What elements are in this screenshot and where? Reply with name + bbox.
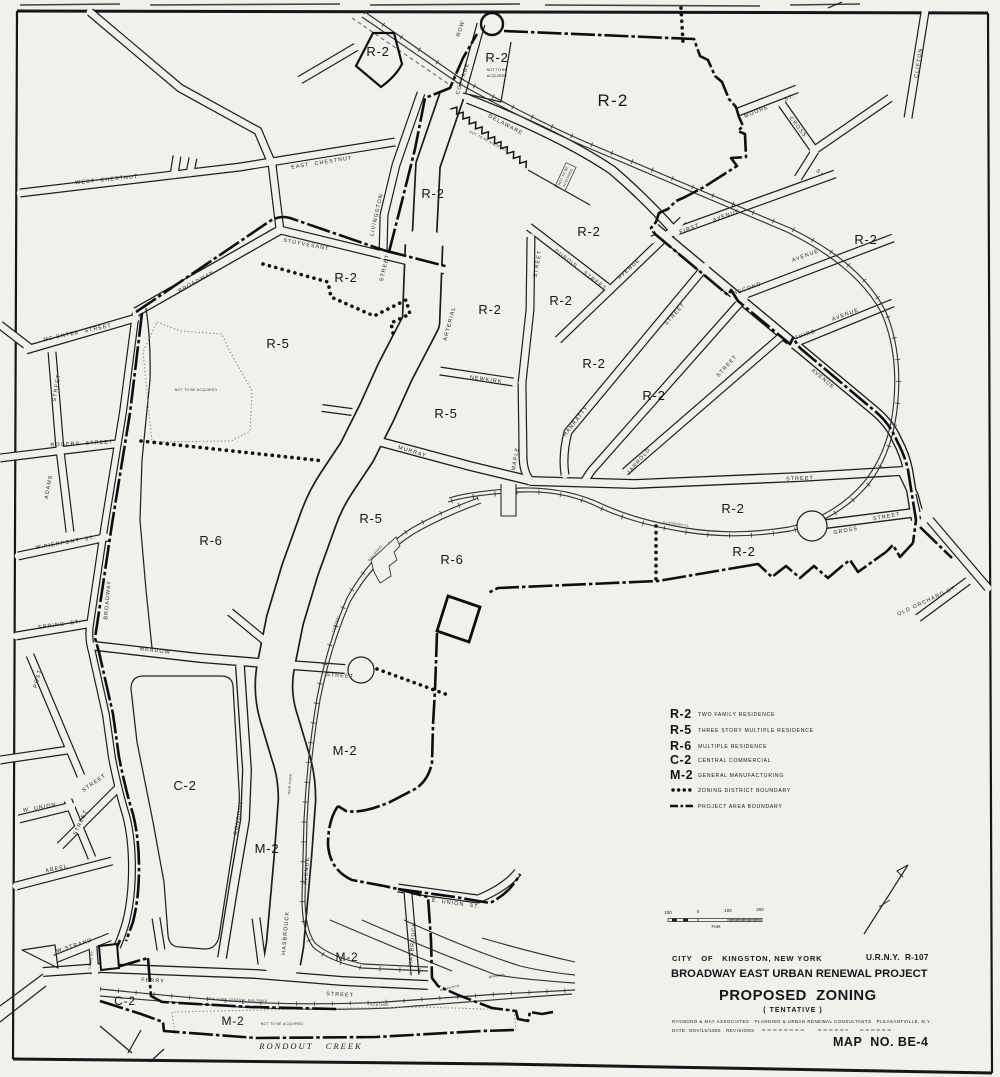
svg-text:C-2: C-2 bbox=[670, 753, 692, 767]
svg-text:R-5: R-5 bbox=[266, 336, 289, 351]
svg-text:M-2: M-2 bbox=[333, 743, 358, 758]
svg-text:NOT TO BE: NOT TO BE bbox=[487, 68, 508, 72]
svg-text:PROJECT AREA BOUNDARY: PROJECT AREA BOUNDARY bbox=[698, 804, 783, 810]
svg-text:ECHTMILL: ECHTMILL bbox=[370, 1003, 389, 1007]
svg-text:R-2: R-2 bbox=[366, 44, 389, 59]
svg-text:M-2: M-2 bbox=[335, 950, 358, 964]
svg-text:R-2: R-2 bbox=[732, 544, 755, 559]
svg-text:RONDOUT CREEK: RONDOUT CREEK bbox=[258, 1041, 362, 1051]
svg-text:M-2: M-2 bbox=[670, 768, 693, 782]
svg-text:ZONING DISTRICT BOUNDARY: ZONING DISTRICT BOUNDARY bbox=[698, 788, 791, 794]
svg-text:R-2: R-2 bbox=[577, 224, 600, 239]
svg-text:R-2: R-2 bbox=[421, 186, 444, 201]
svg-text:R-5: R-5 bbox=[359, 511, 382, 526]
svg-text:PROPOSED ZONING: PROPOSED ZONING bbox=[719, 988, 877, 1004]
svg-text:MULTIPLE RESIDENCE: MULTIPLE RESIDENCE bbox=[698, 744, 767, 750]
svg-text:CENTRAL COMMERCIAL: CENTRAL COMMERCIAL bbox=[698, 758, 771, 764]
svg-text:NOT TO BE ACQUIRED: NOT TO BE ACQUIRED bbox=[175, 388, 218, 392]
svg-text:R-2: R-2 bbox=[598, 91, 629, 110]
svg-text:M-2: M-2 bbox=[255, 841, 280, 856]
svg-text:NOT TO BE ACQUIRED: NOT TO BE ACQUIRED bbox=[261, 1022, 304, 1026]
svg-text:R-2: R-2 bbox=[478, 302, 501, 317]
svg-text:R-2: R-2 bbox=[854, 232, 877, 247]
svg-text:M-2: M-2 bbox=[221, 1014, 244, 1028]
svg-text:100: 100 bbox=[724, 908, 732, 913]
svg-text:R-2: R-2 bbox=[485, 50, 508, 65]
svg-text:ACQUIRED: ACQUIRED bbox=[487, 74, 508, 78]
svg-text:R-2: R-2 bbox=[642, 388, 665, 403]
svg-text:R-2: R-2 bbox=[549, 293, 572, 308]
svg-text:R-2: R-2 bbox=[670, 707, 692, 721]
svg-text:Feet: Feet bbox=[711, 924, 721, 929]
svg-text:U.R.N.Y. R-107: U.R.N.Y. R-107 bbox=[866, 953, 929, 962]
svg-text:R-2: R-2 bbox=[721, 501, 744, 516]
svg-text:CITY OF KINGSTON, NEW YORK: CITY OF KINGSTON, NEW YORK bbox=[672, 954, 822, 963]
svg-text:R-6: R-6 bbox=[199, 533, 222, 548]
svg-text:( TENTATIVE ): ( TENTATIVE ) bbox=[763, 1007, 822, 1014]
svg-text:BROADWAY EAST URBAN RENEWAL PR: BROADWAY EAST URBAN RENEWAL PROJECT bbox=[671, 968, 928, 980]
svg-text:DATE: NOV/15/1965 REVISIONS: DATE: NOV/15/1965 REVISIONS bbox=[672, 1028, 755, 1033]
svg-text:C-2: C-2 bbox=[173, 778, 196, 793]
svg-text:R-6: R-6 bbox=[670, 739, 692, 753]
svg-text:100: 100 bbox=[664, 910, 672, 915]
svg-text:RAYMOND & MAY ASSOCIATES PLA: RAYMOND & MAY ASSOCIATES PLANNING & URBA… bbox=[672, 1019, 931, 1024]
svg-text:C-2: C-2 bbox=[114, 994, 136, 1008]
svg-text:MAP NO. BE-4: MAP NO. BE-4 bbox=[833, 1035, 928, 1049]
svg-text:R-6: R-6 bbox=[440, 552, 463, 567]
svg-text:TWO FAMILY RESIDENCE: TWO FAMILY RESIDENCE bbox=[698, 712, 775, 718]
svg-text:R-5: R-5 bbox=[434, 406, 457, 421]
svg-text:THREE STORY MULTIPLE RESIDENCE: THREE STORY MULTIPLE RESIDENCE bbox=[698, 728, 814, 734]
svg-text:200: 200 bbox=[756, 907, 764, 912]
svg-text:R-5: R-5 bbox=[670, 723, 692, 737]
svg-text:GENERAL MANUFACTURING: GENERAL MANUFACTURING bbox=[698, 773, 784, 779]
svg-text:R-2: R-2 bbox=[582, 356, 605, 371]
svg-text:R-2: R-2 bbox=[334, 270, 357, 285]
svg-text:STREET: STREET bbox=[786, 476, 814, 483]
